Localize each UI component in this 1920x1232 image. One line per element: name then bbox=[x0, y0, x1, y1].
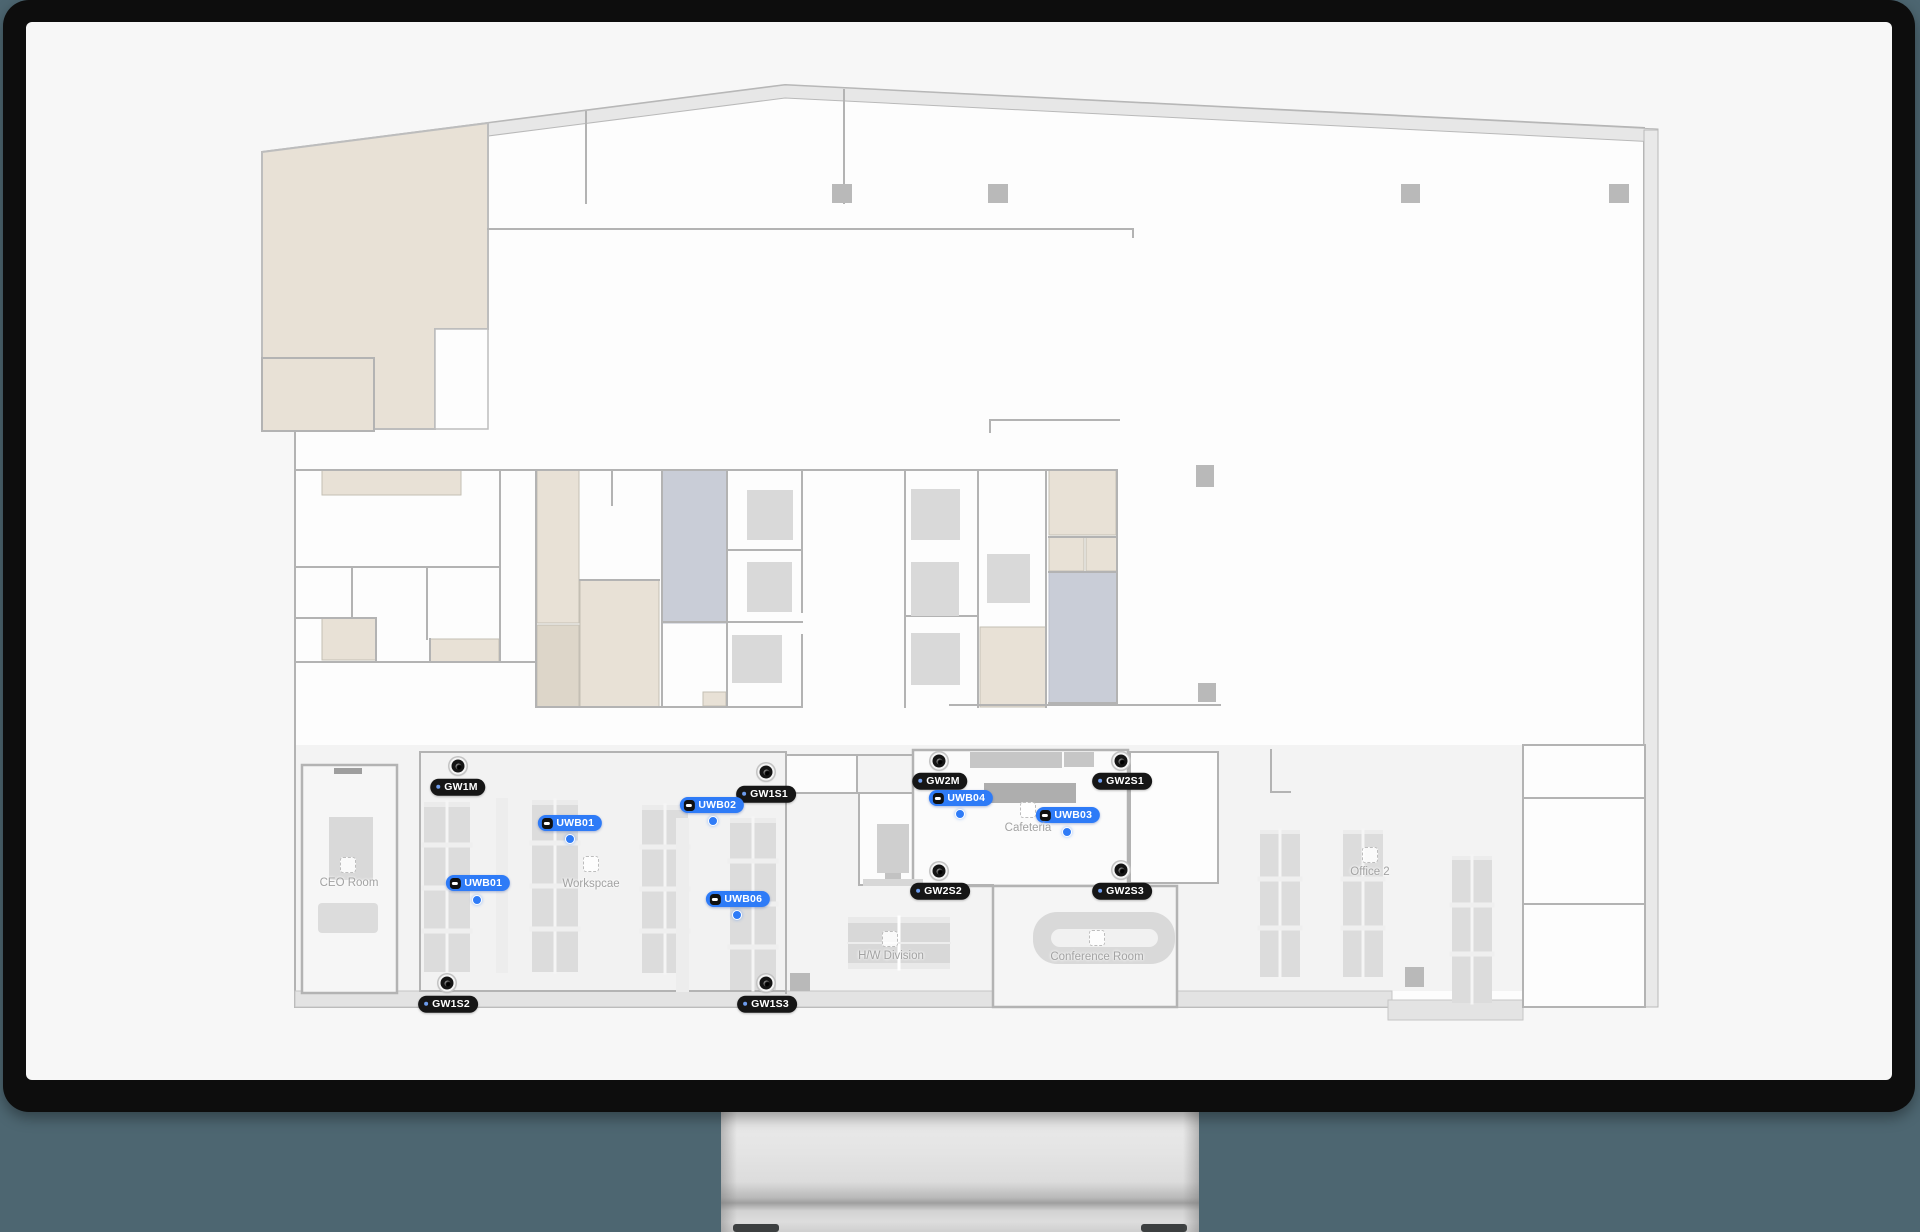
gateway-anchor-marker-gw2s3[interactable] bbox=[1113, 862, 1130, 879]
room-target-icon-ceo-room bbox=[340, 857, 356, 873]
tag-badge-uwb04[interactable]: UWB04 bbox=[929, 790, 993, 806]
gateway-badge-gw2s2[interactable]: GW2S2 bbox=[910, 883, 970, 900]
tag-label: UWB06 bbox=[724, 894, 762, 905]
tag-device-icon bbox=[541, 818, 552, 829]
tag-badge-uwb03[interactable]: UWB03 bbox=[1036, 807, 1100, 823]
room-label-hw-division: H/W Division bbox=[858, 950, 924, 962]
gateway-status-dot bbox=[742, 792, 746, 796]
gateway-badge-gw1s3[interactable]: GW1S3 bbox=[737, 996, 797, 1013]
gateway-anchor-marker-gw1m[interactable] bbox=[450, 758, 467, 775]
gateway-anchor-core bbox=[763, 769, 769, 775]
gateway-anchor-marker-gw2s2[interactable] bbox=[931, 863, 948, 880]
gateway-anchor-core bbox=[1118, 758, 1124, 764]
tag-label: UWB01 bbox=[556, 818, 594, 829]
gateway-anchor-core bbox=[1118, 867, 1124, 873]
gateway-label: GW1S2 bbox=[432, 999, 470, 1010]
gateway-anchor-core bbox=[763, 980, 769, 986]
gateway-badge-gw2s1[interactable]: GW2S1 bbox=[1092, 773, 1152, 790]
desktop-scene: { "scene": { "background_color": "#4d667… bbox=[0, 0, 1920, 1232]
gateway-label: GW2S2 bbox=[924, 886, 962, 897]
tag-device-icon bbox=[449, 878, 460, 889]
gateway-label: GW1S3 bbox=[751, 999, 789, 1010]
gateway-status-dot bbox=[1098, 889, 1102, 893]
tag-badge-uwb02[interactable]: UWB02 bbox=[680, 797, 744, 813]
gateway-status-dot bbox=[743, 1002, 747, 1006]
room-target-icon-conference-room bbox=[1089, 930, 1105, 946]
stand-foot-left bbox=[733, 1224, 779, 1232]
floorplan-svg bbox=[26, 22, 1892, 1080]
gateway-anchor-core bbox=[444, 980, 450, 986]
tag-badge-uwb01-b[interactable]: UWB01 bbox=[446, 875, 510, 891]
room-target-icon-cafeteria bbox=[1020, 802, 1036, 818]
tag-label: UWB01 bbox=[464, 878, 502, 889]
gateway-label: GW1S1 bbox=[750, 789, 788, 800]
gateway-status-dot bbox=[918, 779, 922, 783]
tag-position-dot-uwb01-a[interactable] bbox=[565, 834, 575, 844]
gateway-badge-gw2m[interactable]: GW2M bbox=[912, 773, 967, 790]
tag-position-dot-uwb03[interactable] bbox=[1062, 827, 1072, 837]
room-label-ceo-room: CEO Room bbox=[320, 877, 379, 889]
gateway-label: GW2M bbox=[926, 776, 959, 787]
tag-device-icon bbox=[683, 800, 694, 811]
stand-foot-right bbox=[1141, 1224, 1187, 1232]
tag-label: UWB04 bbox=[947, 793, 985, 804]
gateway-badge-gw2s3[interactable]: GW2S3 bbox=[1092, 883, 1152, 900]
monitor-stand bbox=[721, 1100, 1199, 1232]
gateway-anchor-marker-gw1s2[interactable] bbox=[439, 975, 456, 992]
tag-position-dot-uwb06[interactable] bbox=[732, 910, 742, 920]
tag-label: UWB03 bbox=[1054, 810, 1092, 821]
tag-position-dot-uwb02[interactable] bbox=[708, 816, 718, 826]
gateway-anchor-marker-gw1s3[interactable] bbox=[758, 975, 775, 992]
tag-badge-uwb06[interactable]: UWB06 bbox=[706, 891, 770, 907]
tag-badge-uwb01-a[interactable]: UWB01 bbox=[538, 815, 602, 831]
gateway-status-dot bbox=[916, 889, 920, 893]
room-label-workspace: Workspcae bbox=[562, 878, 619, 890]
tag-device-icon bbox=[1039, 810, 1050, 821]
room-label-conference-room: Conference Room bbox=[1050, 951, 1143, 963]
gateway-badge-gw1s2[interactable]: GW1S2 bbox=[418, 996, 478, 1013]
gateway-label: GW2S1 bbox=[1106, 776, 1144, 787]
gateway-badge-gw1m[interactable]: GW1M bbox=[430, 779, 485, 796]
gateway-status-dot bbox=[1098, 779, 1102, 783]
gateway-label: GW1M bbox=[444, 782, 477, 793]
tag-position-dot-uwb01-b[interactable] bbox=[472, 895, 482, 905]
gateway-anchor-core bbox=[455, 763, 461, 769]
room-target-icon-office-2 bbox=[1362, 847, 1378, 863]
room-target-icon-workspace bbox=[583, 856, 599, 872]
gateway-anchor-core bbox=[936, 758, 942, 764]
gateway-status-dot bbox=[436, 785, 440, 789]
gateway-anchor-core bbox=[936, 868, 942, 874]
gateway-anchor-marker-gw2s1[interactable] bbox=[1113, 753, 1130, 770]
room-label-cafeteria: Cafeteria bbox=[1005, 822, 1052, 834]
gateway-label: GW2S3 bbox=[1106, 886, 1144, 897]
gateway-status-dot bbox=[424, 1002, 428, 1006]
gateway-badge-gw1s1[interactable]: GW1S1 bbox=[736, 786, 796, 803]
tag-position-dot-uwb04[interactable] bbox=[955, 809, 965, 819]
room-target-icon-hw-division bbox=[882, 931, 898, 947]
gateway-anchor-marker-gw2m[interactable] bbox=[931, 753, 948, 770]
tag-device-icon bbox=[709, 894, 720, 905]
gateway-anchor-marker-gw1s1[interactable] bbox=[758, 764, 775, 781]
tag-label: UWB02 bbox=[698, 800, 736, 811]
tag-device-icon bbox=[932, 793, 943, 804]
room-label-office-2: Office 2 bbox=[1350, 866, 1389, 878]
